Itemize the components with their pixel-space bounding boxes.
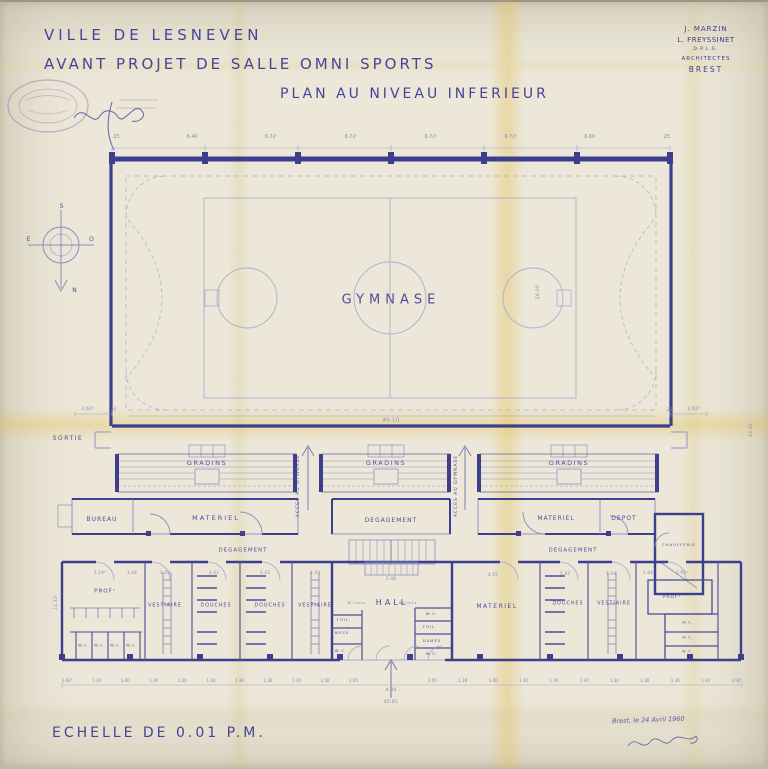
dimension-value: 1.30 xyxy=(149,679,158,683)
dimension-side-right: 2.62⁵ xyxy=(687,408,700,413)
dimension-value: 2.05 xyxy=(349,679,358,683)
dimension-value: 1.30 xyxy=(549,679,558,683)
room-label-gradins: GRADINS xyxy=(549,460,589,467)
access-label: ACCES AU GYMNASE xyxy=(455,455,460,517)
dimension-value: 4.55 xyxy=(488,573,498,577)
room-label-degagement: DEGAGEMENT xyxy=(365,518,418,524)
dimension-wall: .25 xyxy=(109,408,116,412)
architect-city: BREST xyxy=(660,66,752,74)
room-label-degagement: DEGAGEMENT xyxy=(218,548,267,554)
dimension-row-top: .256.406.72⁵6.72⁵6.72⁵6.72⁵6.60.25 xyxy=(112,136,670,141)
dimension-right-edge: 33.32 xyxy=(750,423,755,437)
room-label-douches: DOUCHES xyxy=(200,605,231,610)
dimension-entrance: 4.30 xyxy=(385,689,396,694)
room-label-vestiaire: VESTIAIRE xyxy=(597,603,631,608)
room-label-chaufferie: CHAUFFERIE xyxy=(662,543,696,547)
dimension-left-height: 11.32⁵ xyxy=(54,595,58,610)
dimension-stairs: 2.48 xyxy=(386,577,397,581)
scale-note: ECHELLE DE 0.01 P.M. xyxy=(52,726,266,740)
plan-drawing xyxy=(0,2,768,767)
dimension-value: 2.92⁵ xyxy=(62,679,73,683)
room-label-toil: TOIL. xyxy=(337,618,352,622)
dimension-value: 2.92⁵ xyxy=(676,571,688,575)
services-row xyxy=(58,499,703,594)
dimension-value: 6.60 xyxy=(584,136,595,141)
room-label-wc: W.C. xyxy=(682,650,694,653)
gym-dimension-lines xyxy=(75,145,707,417)
dimension-value: 3.43 xyxy=(310,571,320,575)
dimension-value: 3.43 xyxy=(606,572,616,576)
room-label-gradins: GRADINS xyxy=(366,460,406,467)
architect-block: J. MARZIN L. FREYSSINET D.P.L.G. ARCHITE… xyxy=(660,26,752,78)
room-label-wc: W.C. xyxy=(94,644,106,647)
architect-name: J. MARZIN xyxy=(660,26,752,33)
dimension-value: 1.30 xyxy=(292,679,301,683)
room-label-gymnase: GYMNASE xyxy=(342,294,441,307)
dimension-value: 1.30 xyxy=(610,679,619,683)
room-label-gradins: GRADINS xyxy=(187,460,227,467)
architect-signature xyxy=(628,736,697,746)
compass-north: N xyxy=(72,288,78,294)
dimension-value: 1.30 xyxy=(121,679,130,683)
room-label-degagement: DEGAGEMENT xyxy=(548,548,597,554)
compass-east: E xyxy=(27,237,32,243)
page-subtitle: AVANT PROJET DE SALLE OMNI SPORTS xyxy=(44,57,437,72)
dimension-value: 6.40 xyxy=(187,136,198,141)
room-label-materiel: MATERIEL xyxy=(192,515,240,522)
dimension-value: 3.43 xyxy=(160,571,170,575)
dimension-value: .25 xyxy=(112,136,120,141)
room-label-douches: DOUCHES xyxy=(254,605,285,610)
room-label-wc: W.C. xyxy=(682,636,694,639)
dimension-value: 2.92⁵ xyxy=(731,679,742,683)
dimension-value: 1.30 xyxy=(92,679,101,683)
dimension-value: 1.30 xyxy=(580,679,589,683)
room-label-billets: Billets xyxy=(348,602,366,606)
room-label-wc: W.C. xyxy=(78,644,90,647)
dimension-value: 2.05 xyxy=(428,679,437,683)
access-label: ACCES AU GYMNASE xyxy=(297,455,302,517)
room-label-depot: DEPOT xyxy=(611,516,636,522)
dimension-value: 3.43 xyxy=(260,571,270,575)
room-label-bureau: BUREAU xyxy=(87,517,118,523)
dimension-side-left: 2.62⁵ xyxy=(81,408,94,413)
dimension-value: 6.72⁵ xyxy=(504,136,517,141)
compass-west: O xyxy=(89,237,95,243)
room-label-wc: W.C. xyxy=(426,652,438,656)
dimension-value: 1.30 xyxy=(671,679,680,683)
dimension-value: 1.30 xyxy=(458,679,467,683)
dimension-chain-right: 2.051.301.301.301.301.301.301.301.301.30… xyxy=(428,679,742,683)
architect-credential: D.P.L.G. xyxy=(660,48,752,53)
dimension-value: 6.72⁵ xyxy=(345,136,358,141)
architect-role: ARCHITECTES xyxy=(660,57,752,63)
dimension-total-width: 45.85 xyxy=(384,701,398,706)
signature-scribble xyxy=(74,102,143,150)
compass-rose-icon xyxy=(28,210,94,291)
dimension-value: 1.30 xyxy=(519,679,528,683)
room-label-vestiaire: VESTIAIRE xyxy=(298,605,332,610)
room-label-douches: DOUCHES xyxy=(552,603,583,608)
room-label-mess: MESS xyxy=(335,631,350,635)
architect-name: L. FREYSSINET xyxy=(660,37,752,44)
blueprint-sheet: VILLE DE LESNEVEN AVANT PROJET DE SALLE … xyxy=(0,0,768,769)
room-label-prof: PROFˢ xyxy=(94,589,116,595)
room-label-wc: W.C. xyxy=(426,612,438,616)
dimension-value: 1.30 xyxy=(489,679,498,683)
dimension-wall: .25 xyxy=(665,408,672,412)
dimension-value: 1.50 xyxy=(321,679,330,683)
dimension-value: 1.30 xyxy=(206,679,215,683)
dimension-gym-depth: 26.00 xyxy=(537,285,542,299)
dimension-value: 1.30 xyxy=(178,679,187,683)
room-label-wc: W.C. xyxy=(110,644,122,647)
dimension-value: 1.44 xyxy=(643,571,653,575)
dimension-value: 6.72⁵ xyxy=(425,136,438,141)
room-label-prof: PROFˢ xyxy=(663,596,682,601)
room-label-materiel: MATERIEL xyxy=(476,604,517,610)
dimension-value: .25 xyxy=(662,136,670,141)
dimension-value: 6.72⁵ xyxy=(265,136,278,141)
approval-stamp xyxy=(8,80,158,132)
exit-doors xyxy=(95,432,687,448)
room-label-vestiaire: VESTIAIRE xyxy=(148,605,182,610)
page-title: VILLE DE LESNEVEN xyxy=(44,28,262,43)
dimension-gym-width: 40.10 xyxy=(382,418,399,424)
room-label-wc: W.C. xyxy=(126,644,138,647)
room-label-billets: Billets xyxy=(399,602,417,606)
dimension-value: 1.30 xyxy=(263,679,272,683)
dimension-value: 3.43 xyxy=(209,571,219,575)
dimension-value: 1.44 xyxy=(127,571,137,575)
dimension-value: 1.30 xyxy=(701,679,710,683)
gradins-blocks xyxy=(115,445,659,492)
exit-label: SORTIE xyxy=(53,436,84,442)
room-label-wc: W.C. xyxy=(335,649,347,653)
dimension-value: 3.43 xyxy=(560,572,570,576)
room-label-toil: TOIL. xyxy=(423,625,438,629)
room-label-dames: DAMES xyxy=(423,639,442,643)
dimension-chain-left: 2.92⁵1.301.301.301.301.301.301.301.301.5… xyxy=(62,679,358,683)
lower-band-walls xyxy=(62,562,741,660)
dimension-value: 1.30 xyxy=(235,679,244,683)
dimension-value: 1.30 xyxy=(640,679,649,683)
compass-south: S xyxy=(60,204,65,210)
room-label-wc: W.C. xyxy=(682,621,694,624)
room-label-materiel: MATERIEL xyxy=(537,516,574,522)
dimension-value: 2.19⁵ xyxy=(94,571,106,575)
plan-level-title: PLAN AU NIVEAU INFERIEUR xyxy=(280,87,549,101)
